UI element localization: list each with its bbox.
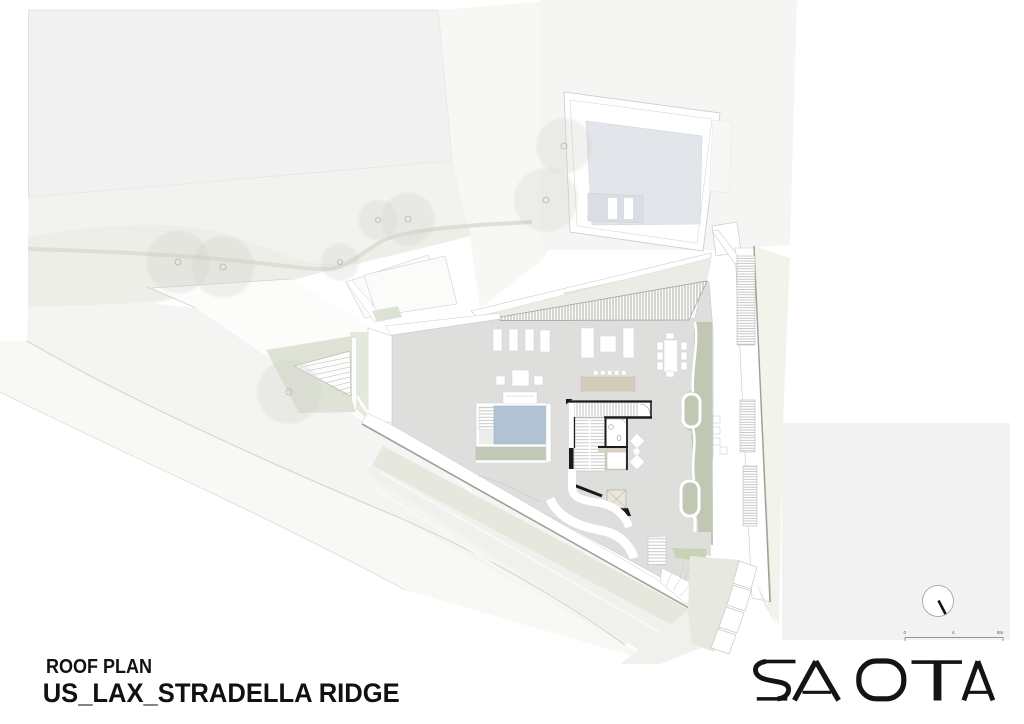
svg-text:8m: 8m [997,630,1004,635]
svg-text:ROOF PLAN: ROOF PLAN [46,656,152,678]
svg-text:US_LAX_STRADELLA RIDGE: US_LAX_STRADELLA RIDGE [43,678,400,708]
